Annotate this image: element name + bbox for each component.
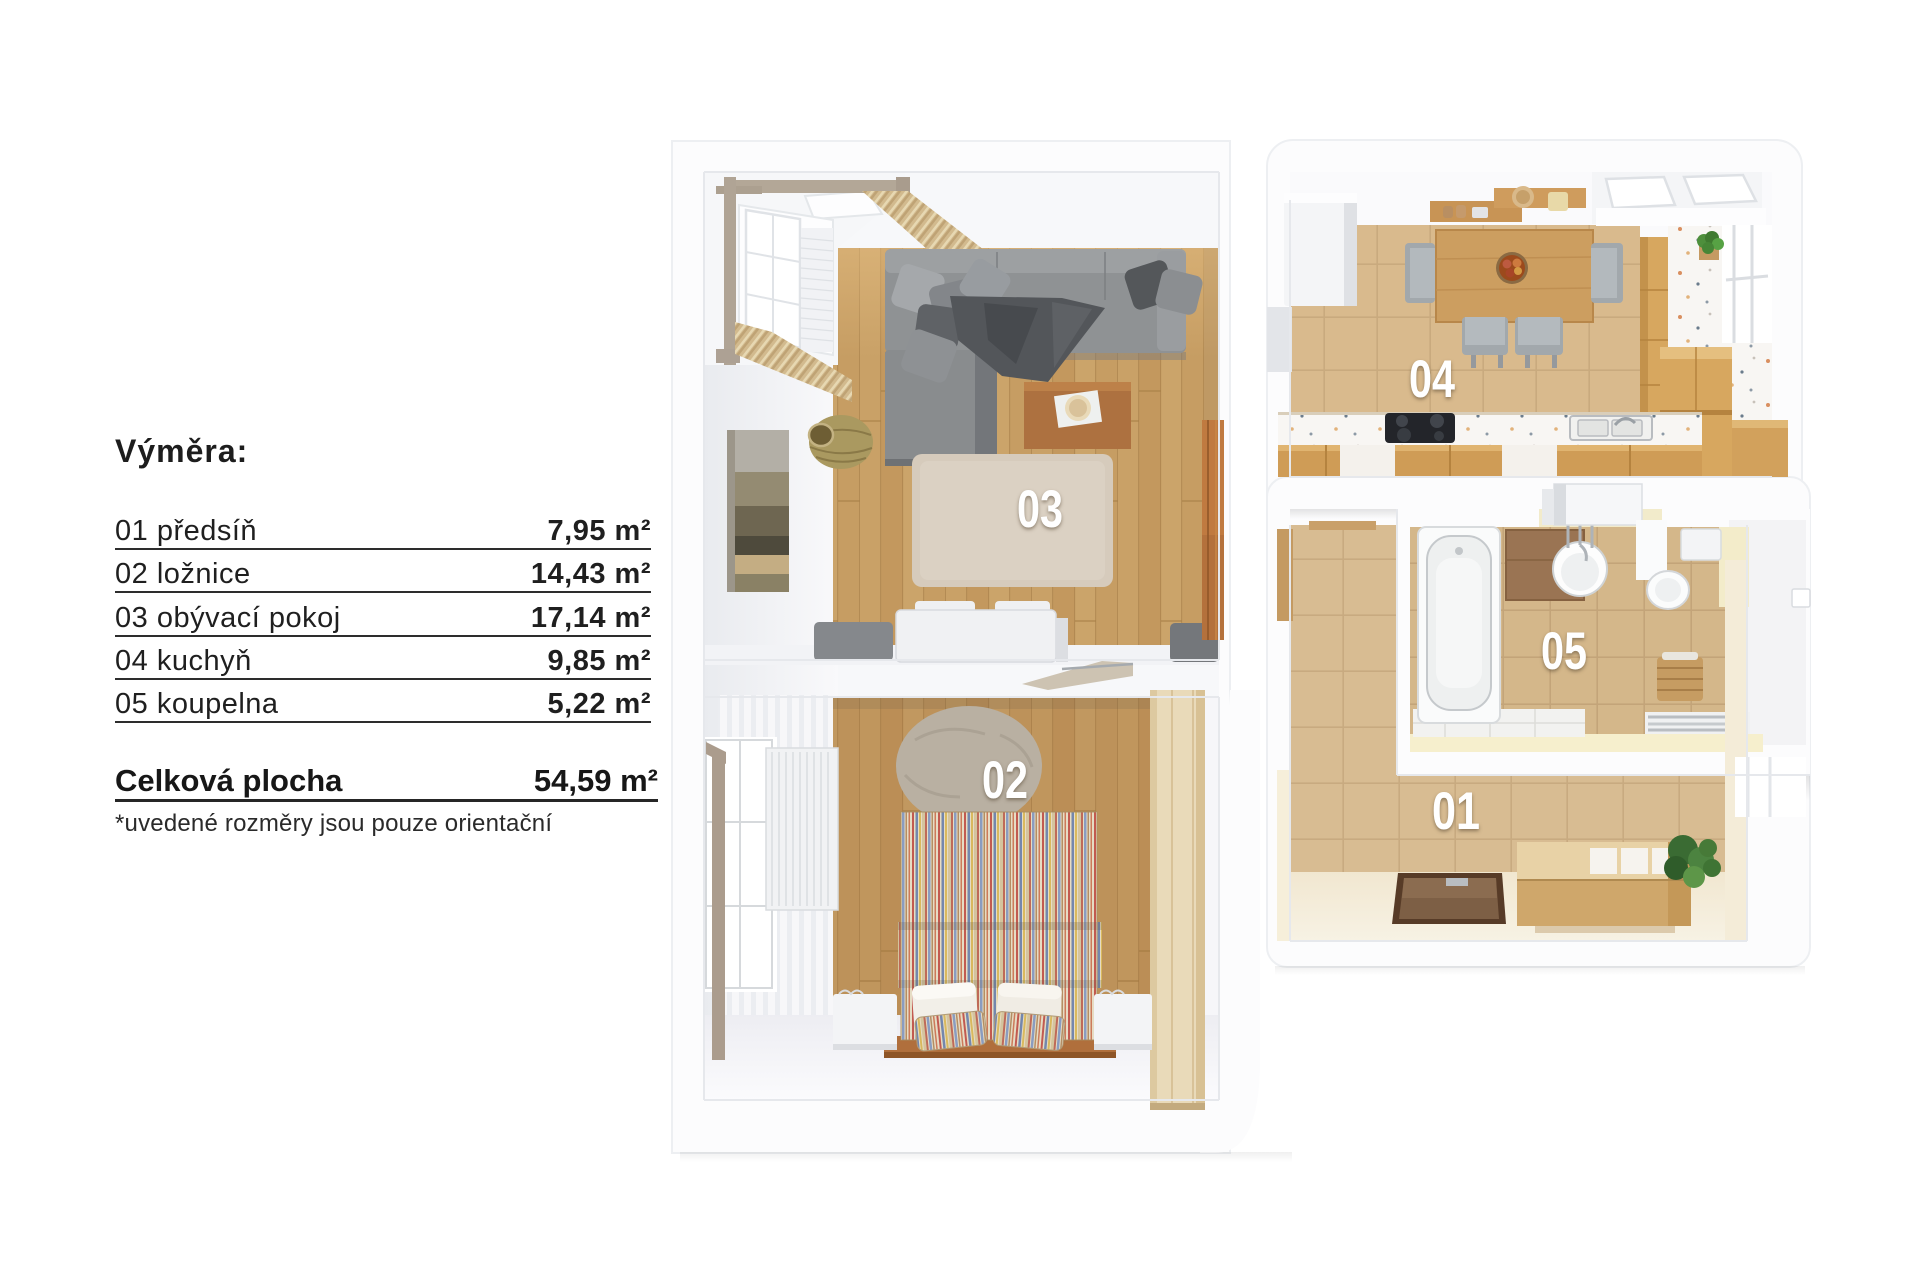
svg-text:03: 03 [1017,480,1063,539]
svg-text:05: 05 [1541,622,1587,681]
svg-text:04: 04 [1409,350,1455,409]
svg-text:01: 01 [1432,782,1480,841]
svg-text:02: 02 [982,751,1028,810]
